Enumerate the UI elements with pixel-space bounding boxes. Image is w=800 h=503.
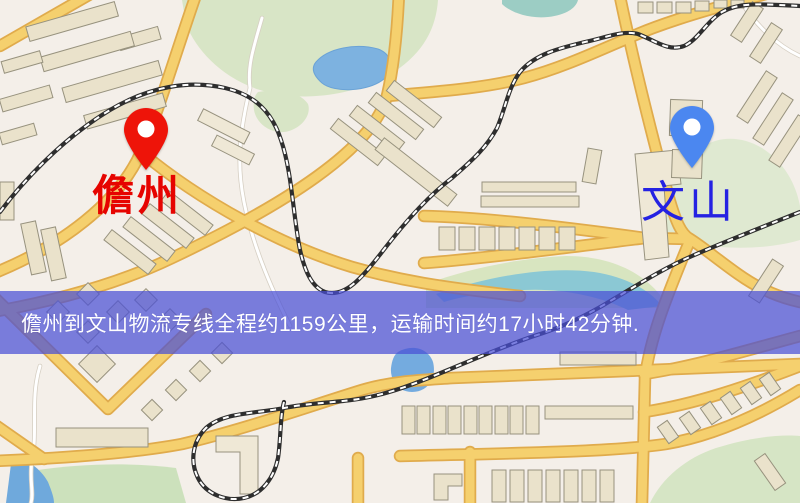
route-info-text: 儋州到文山物流专线全程约1159公里，运输时间约17小时42分钟. [0, 308, 639, 338]
destination-city-label: 文山 [641, 181, 737, 225]
origin-city-label: 儋州 [92, 176, 182, 218]
red-pin-icon[interactable] [124, 108, 168, 170]
map-canvas[interactable]: 儋州到文山物流专线全程约1159公里，运输时间约17小时42分钟. 儋州 文山 [0, 0, 800, 503]
route-info-banner: 儋州到文山物流专线全程约1159公里，运输时间约17小时42分钟. [0, 291, 800, 354]
map-tiles [0, 0, 800, 503]
blue-pin-icon[interactable] [670, 106, 714, 168]
